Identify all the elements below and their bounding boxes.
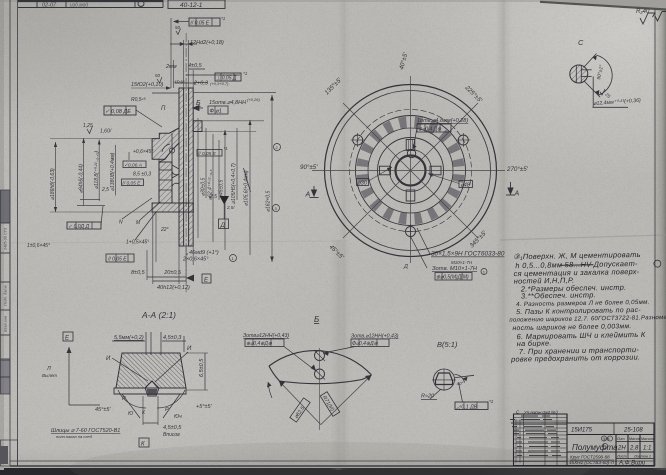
- svg-text:(+0,3+0,7): (+0,3+0,7): [210, 81, 229, 86]
- svg-text:90°±5': 90°±5': [300, 164, 318, 171]
- svg-text:30×1,5×9Н ГОСТ6033-80: 30×1,5×9Н ГОСТ6033-80: [431, 251, 505, 258]
- svg-text:⊥ 0,05 Д: ⊥ 0,05 Д: [216, 76, 237, 82]
- svg-text:270°±5': 270°±5': [506, 166, 529, 173]
- svg-text:15И175: 15И175: [571, 428, 593, 434]
- svg-text:1±0,6×45°: 1±0,6×45°: [27, 243, 50, 249]
- svg-text:2×0,6×45°: 2×0,6×45°: [182, 257, 209, 263]
- svg-text:40°: 40°: [457, 381, 464, 386]
- svg-text:Ю: Ю: [128, 411, 133, 417]
- svg-text:// 0,05 Е: // 0,05 Е: [197, 151, 217, 157]
- svg-text:⊕⌀0,4 Д⊕: ⊕⌀0,4 Д⊕: [418, 127, 442, 133]
- svg-text:Д: Д: [220, 222, 226, 229]
- svg-text:Р: Р: [122, 396, 126, 402]
- svg-text:И: И: [106, 356, 111, 362]
- svg-text:И: И: [187, 346, 192, 352]
- svg-text:R0,5⁴⁵: R0,5⁴⁵: [131, 97, 146, 103]
- svg-text:2,5: 2,5: [101, 187, 109, 193]
- svg-text:М10×1-7Н: М10×1-7Н: [451, 260, 473, 265]
- svg-text:⊕⌀0,4⊕Д⊕: ⊕⌀0,4⊕Д⊕: [246, 341, 273, 347]
- svg-text:N: N: [119, 220, 123, 226]
- svg-text:20±0,5: 20±0,5: [163, 270, 182, 276]
- svg-text:✓ 0,08 ДЕ: ✓ 0,08 ДЕ: [105, 109, 131, 115]
- svg-text:изд.мод: изд.мод: [70, 3, 88, 9]
- svg-text:02-07: 02-07: [42, 3, 57, 9]
- svg-text:+5°±5': +5°±5': [196, 404, 213, 410]
- svg-text:УЧ.Напьч фкd №д: УЧ.Напьч фкd №д: [524, 410, 558, 415]
- svg-text:Масса: Масса: [629, 437, 640, 441]
- svg-text:С: С: [578, 38, 584, 47]
- svg-text:2+0,3: 2+0,3: [193, 81, 209, 87]
- svg-text:+0,6×45°: +0,6×45°: [133, 149, 153, 155]
- svg-text:Вписов: Вписов: [163, 432, 180, 438]
- svg-text:40h12(+0,12): 40h12(+0,12): [157, 285, 190, 291]
- svg-text:15отв.⌀4,8НН: 15отв.⌀4,8НН: [209, 100, 246, 106]
- svg-text:Р: Р: [165, 407, 169, 413]
- svg-text:Зотв. М10×1-7Н: Зотв. М10×1-7Н: [432, 266, 478, 272]
- svg-text:50: 50: [175, 25, 181, 30]
- svg-text:Юч: Юч: [174, 414, 182, 420]
- svg-text:1отв.⌀4,8мм(+0,28): 1отв.⌀4,8мм(+0,28): [417, 118, 468, 124]
- svg-text:2мм: 2мм: [165, 64, 177, 70]
- svg-text:Л: Л: [46, 366, 51, 372]
- svg-text:◿ 0,1 ДВ: ◿ 0,1 ДВ: [455, 405, 478, 411]
- svg-text:22°: 22°: [160, 227, 169, 233]
- svg-text:*1: *1: [489, 399, 494, 404]
- svg-text:Зотв⌀12НН(+0,43): Зотв⌀12НН(+0,43): [243, 333, 289, 339]
- svg-text:// 0,05 Е: // 0,05 Е: [107, 257, 127, 263]
- svg-text:8,5 ±0,3: 8,5 ±0,3: [133, 172, 151, 178]
- svg-text:*1: *1: [243, 71, 248, 76]
- svg-text:Подп. дата: Подп. дата: [4, 285, 8, 306]
- svg-text:⌀118,8(⁺⁰·²²₋₀.₄₇): ⌀118,8(⁺⁰·²²₋₀.₄₇): [94, 151, 100, 189]
- svg-text:Вылет: Вылет: [42, 373, 57, 378]
- svg-text:5,5мм(+0,2): 5,5мм(+0,2): [114, 335, 144, 341]
- svg-text:А.Ф.Вири: А.Ф.Вири: [618, 461, 646, 467]
- svg-text:2Н: 2Н: [617, 446, 626, 452]
- svg-text:Лит.: Лит.: [616, 437, 625, 441]
- svg-text:8±0,5: 8±0,5: [131, 270, 146, 276]
- svg-text:50: 50: [155, 73, 161, 78]
- svg-text:Масшт.: Масшт.: [641, 437, 655, 441]
- svg-text:(+0,26): (+0,26): [247, 97, 260, 102]
- svg-text:1:1: 1:1: [643, 446, 651, 452]
- svg-text:⊕⌀0,5(М)Д(М): ⊕⌀0,5(М)Д(М): [436, 275, 469, 281]
- svg-text:*1: *1: [221, 16, 226, 21]
- svg-text:А-А (2:1): А-А (2:1): [141, 310, 176, 320]
- svg-text:Листов 1: Листов 1: [633, 455, 651, 459]
- svg-text:⑤③: ⑤③: [603, 437, 611, 442]
- svg-text:Ф ⌀1: Ф ⌀1: [210, 109, 222, 115]
- svg-text:1,60/: 1,60/: [100, 129, 112, 135]
- svg-text:2,5: 2,5: [209, 194, 217, 200]
- svg-text:2485-00 СТ3: 2485-00 СТ3: [4, 227, 8, 251]
- svg-text:полн.накал на след: полн.накал на след: [56, 434, 93, 439]
- svg-text:*1: *1: [224, 146, 229, 151]
- svg-text:К: К: [141, 442, 145, 448]
- svg-text:4,5±0,3: 4,5±0,3: [163, 335, 182, 341]
- svg-text:⌀30±0,5: ⌀30±0,5: [201, 178, 207, 196]
- svg-text:45ХН2 (ОСТВ3-60)-Л: 45ХН2 (ОСТВ3-60)-Л: [569, 460, 615, 465]
- svg-text:⌀45±0,5: ⌀45±0,5: [219, 180, 225, 198]
- svg-text:12Нd2(+0,18): 12Нd2(+0,18): [190, 40, 224, 46]
- svg-text:2,5/: 2,5/: [226, 205, 235, 210]
- svg-text:Ф⌀0,4⊕Д⊕: Ф⌀0,4⊕Д⊕: [352, 341, 379, 347]
- svg-text:// 0,05 Е: // 0,05 Е: [190, 21, 210, 27]
- svg-text:4,5±0,5: 4,5±0,5: [163, 425, 182, 431]
- svg-text:Б: Б: [314, 315, 319, 324]
- svg-text:2,8: 2,8: [629, 446, 639, 452]
- svg-text:⌀30: ⌀30: [358, 181, 368, 187]
- svg-text:4Р48: 4Р48: [174, 80, 185, 85]
- svg-text:Взам.инв: Взам.инв: [4, 316, 8, 332]
- svg-text:1+0,5×45°: 1+0,5×45°: [126, 240, 149, 246]
- svg-text:46мd9 (+1°): 46мd9 (+1°): [189, 250, 219, 256]
- svg-text:Круг ГОСТ2590-88: Круг ГОСТ2590-88: [570, 455, 610, 460]
- svg-text:15Ю2(+0,10): 15Ю2(+0,10): [131, 82, 164, 88]
- svg-text:Д: Д: [403, 264, 408, 270]
- svg-text:В(5:1): В(5:1): [437, 340, 458, 349]
- svg-text:✓ 0,0Д Д: ✓ 0,0Д Д: [68, 224, 89, 230]
- svg-text:⌀105Н5(+0,4+0,7): ⌀105Н5(+0,4+0,7): [231, 163, 237, 204]
- svg-text:Лист: Лист: [616, 455, 627, 459]
- svg-text:4±0,5: 4±0,5: [188, 63, 203, 69]
- svg-text:45°±5': 45°±5': [95, 407, 111, 413]
- svg-text:П: П: [161, 106, 166, 112]
- svg-text:25-108: 25-108: [623, 428, 643, 434]
- svg-text:6,5±0,5: 6,5±0,5: [199, 358, 205, 377]
- svg-text:⌀48: ⌀48: [461, 183, 471, 189]
- svg-text:Полумуфта: Полумуфта: [572, 443, 618, 452]
- svg-text:⌀138UВ(+0,4мм): ⌀138UВ(+0,4мм): [110, 152, 116, 191]
- svg-text:⌀105,6(+0,4мм): ⌀105,6(+0,4мм): [244, 170, 250, 206]
- svg-text:// 0,05 Е: // 0,05 Е: [122, 181, 142, 187]
- svg-text:⌀94h6(-0,44): ⌀94h6(-0,44): [79, 164, 85, 193]
- svg-text:⌀186h8(-0,63): ⌀186h8(-0,63): [50, 168, 56, 200]
- svg-text:40-12-1: 40-12-1: [180, 2, 203, 9]
- svg-text:⌀162+0,5: ⌀162+0,5: [266, 191, 272, 212]
- svg-text:✓0,06 А: ✓0,06 А: [124, 163, 142, 169]
- svg-text:А: А: [514, 191, 520, 198]
